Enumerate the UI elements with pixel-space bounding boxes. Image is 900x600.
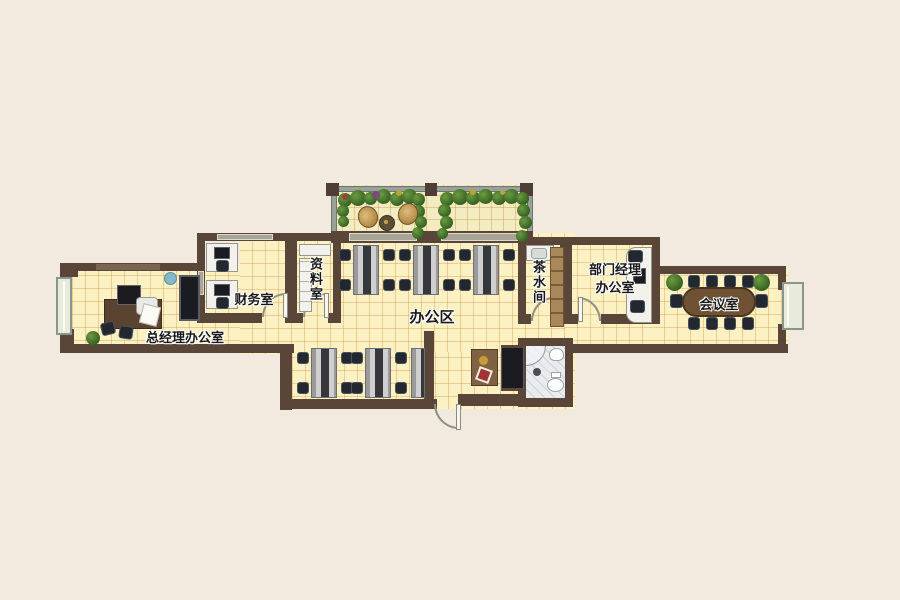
- toilet: [547, 378, 564, 392]
- wall: [328, 313, 341, 323]
- room-label-finance: 财务室: [212, 289, 296, 308]
- storage-cabinet: [501, 345, 524, 391]
- plant-icon: [412, 227, 424, 239]
- balcony-post: [425, 183, 437, 196]
- sliding-door: [349, 233, 417, 241]
- flower-icon: [500, 190, 505, 195]
- room-label-dept-manager-line2: 办公室: [576, 277, 654, 296]
- room-label-general-manager-office: 总经理办公室: [118, 327, 252, 346]
- kettle: [478, 355, 489, 366]
- wall: [518, 237, 660, 245]
- chair: [383, 249, 395, 261]
- window-pane: [787, 286, 789, 326]
- balcony-post: [326, 183, 339, 196]
- chair: [216, 260, 229, 272]
- wardrobe: [179, 275, 200, 321]
- flower-icon: [396, 190, 402, 196]
- chair: [459, 279, 471, 291]
- room-label-meeting-room: 会议室: [686, 294, 752, 313]
- chair: [706, 317, 718, 330]
- flower-icon: [372, 191, 380, 199]
- chair: [742, 275, 754, 288]
- room-label-tea-room: 茶水间: [528, 250, 547, 314]
- chair: [395, 382, 407, 394]
- room-label-archive: 资料室: [305, 246, 324, 312]
- window-pane: [63, 281, 65, 331]
- table-ornament: [384, 220, 388, 224]
- plant-icon: [438, 204, 451, 217]
- wall: [287, 313, 303, 323]
- entry-door: [456, 404, 461, 430]
- chair: [742, 317, 754, 330]
- wall: [197, 313, 262, 323]
- wall: [458, 394, 525, 406]
- wall: [565, 344, 788, 353]
- chair: [383, 279, 395, 291]
- wall: [280, 399, 437, 409]
- floor-plan: 总经理办公室 财务室 资料室 办公区 茶水间 部门经理 办公室 会议室: [0, 0, 900, 600]
- chair: [395, 352, 407, 364]
- plant-icon: [519, 216, 532, 229]
- plant-icon: [338, 216, 349, 227]
- chair: [503, 249, 515, 261]
- sliding-door: [441, 233, 519, 241]
- plant-icon: [517, 204, 530, 217]
- flower-icon: [342, 194, 348, 200]
- wall: [518, 314, 531, 324]
- desk: [311, 348, 337, 398]
- wall-beam: [96, 264, 160, 270]
- wall: [565, 338, 573, 407]
- plant-icon: [666, 274, 683, 291]
- wall: [518, 245, 526, 324]
- chair: [503, 279, 515, 291]
- bay-window-left: [56, 277, 72, 335]
- window-segment: [217, 234, 273, 240]
- chair: [351, 352, 363, 364]
- chair: [297, 382, 309, 394]
- desk: [473, 245, 499, 295]
- sink: [549, 348, 564, 361]
- chair: [443, 249, 455, 261]
- room-label-office-area: 办公区: [398, 306, 466, 327]
- wall: [652, 266, 786, 274]
- tea-cabinet: [550, 247, 564, 327]
- desk: [411, 348, 425, 398]
- chair: [688, 317, 700, 330]
- trash-bin: [164, 272, 177, 285]
- plant-icon: [86, 331, 100, 345]
- desk: [413, 245, 439, 295]
- wall: [518, 398, 573, 407]
- plant-icon: [516, 230, 528, 242]
- desk: [365, 348, 391, 398]
- chair: [443, 279, 455, 291]
- monitor: [214, 247, 230, 259]
- flower-icon: [470, 189, 476, 195]
- chair: [755, 294, 768, 308]
- chair: [297, 352, 309, 364]
- chair: [399, 279, 411, 291]
- chair: [724, 317, 736, 330]
- room-label-dept-manager-line1: 部门经理: [576, 259, 654, 278]
- plant-icon: [437, 228, 448, 239]
- desk: [353, 245, 379, 295]
- archive-door: [324, 293, 329, 318]
- chair: [339, 249, 351, 261]
- chair: [399, 249, 411, 261]
- chair: [339, 279, 351, 291]
- bay-window-right: [782, 282, 804, 330]
- wall: [424, 331, 434, 401]
- chair: [459, 249, 471, 261]
- drain: [533, 368, 541, 376]
- dept-office-door: [578, 297, 583, 322]
- chair: [351, 382, 363, 394]
- chair: [630, 300, 645, 313]
- plant-icon: [478, 189, 493, 204]
- plant-icon: [753, 274, 770, 291]
